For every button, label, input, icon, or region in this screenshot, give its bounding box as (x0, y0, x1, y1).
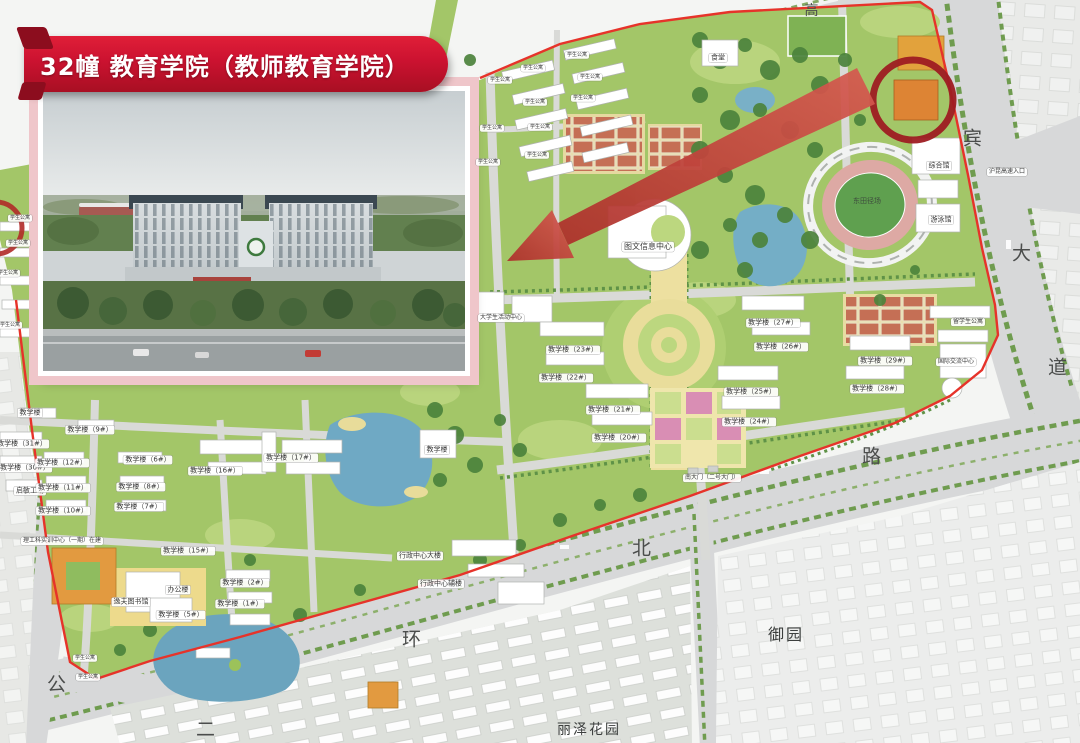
campus-map-page: 32幢 教育学院（教师教育学院） 图文信息中心综合馆游泳馆东田径场沪昆高速入口留… (0, 0, 1080, 743)
title-banner: 32幢 教育学院（教师教育学院） (24, 36, 448, 92)
banner-title: 32幢 教育学院（教师教育学院） (24, 47, 410, 82)
building-photo (38, 86, 470, 376)
